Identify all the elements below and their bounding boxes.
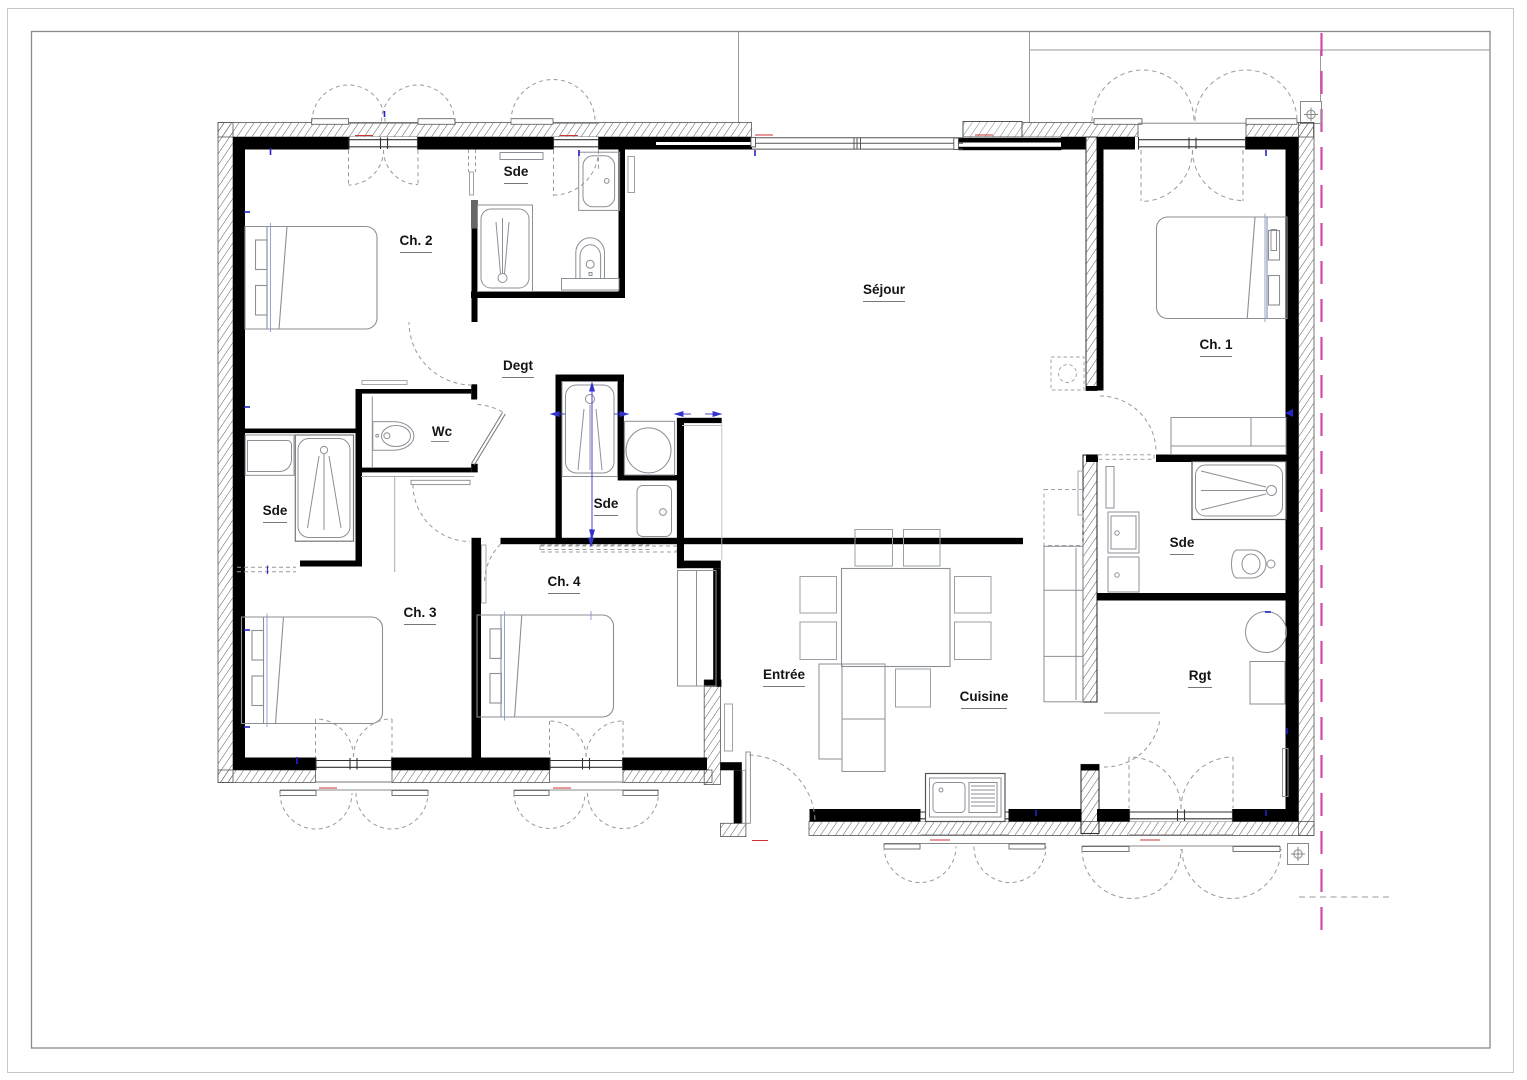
svg-text:Entrée: Entrée (763, 667, 806, 682)
svg-text:Wc: Wc (432, 424, 453, 439)
svg-text:Ch. 4: Ch. 4 (547, 574, 580, 589)
svg-text:Ch. 1: Ch. 1 (1199, 337, 1232, 352)
svg-text:Rgt: Rgt (1189, 668, 1212, 683)
svg-text:Sde: Sde (1170, 535, 1195, 550)
svg-text:Degt: Degt (503, 358, 534, 373)
svg-text:Sde: Sde (504, 164, 529, 179)
svg-text:Ch. 2: Ch. 2 (399, 233, 432, 248)
svg-text:Séjour: Séjour (863, 282, 906, 297)
svg-text:Sde: Sde (594, 496, 619, 511)
svg-text:Sde: Sde (263, 503, 288, 518)
svg-text:Cuisine: Cuisine (960, 689, 1009, 704)
svg-text:Ch. 3: Ch. 3 (403, 605, 436, 620)
